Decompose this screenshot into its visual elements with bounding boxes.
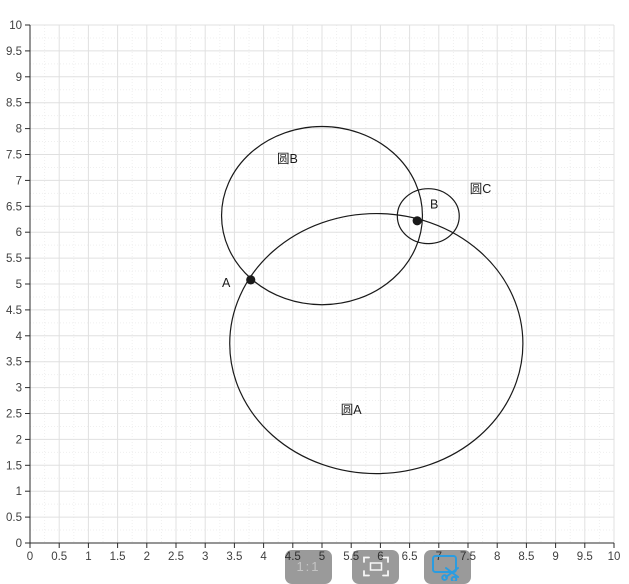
circle-B-label: 圆B <box>277 152 298 166</box>
x-tick-label: 3.5 <box>226 551 242 563</box>
point-A <box>246 275 255 284</box>
y-tick-label: 7 <box>16 175 22 187</box>
y-tick-label: 9 <box>16 72 22 84</box>
x-tick-label: 9 <box>552 551 558 563</box>
x-tick-label: 1.5 <box>110 551 126 563</box>
point-B <box>413 216 422 225</box>
x-tick-label: 6.5 <box>402 551 418 563</box>
x-tick-label: 1 <box>85 551 91 563</box>
y-tick-label: 1 <box>16 486 22 498</box>
x-tick-label: 4 <box>260 551 267 563</box>
circle-C-label: 圆C <box>470 182 492 196</box>
y-tick-label: 9.5 <box>6 46 22 58</box>
y-tick-label: 1.5 <box>6 460 22 472</box>
x-tick-label: 8 <box>494 551 500 563</box>
y-tick-label: 4.5 <box>6 305 22 317</box>
circle-A-label: 圆A <box>341 403 363 417</box>
plot-svg: 00.511.522.533.544.555.566.577.588.599.5… <box>0 0 629 577</box>
x-tick-label: 0 <box>27 551 33 563</box>
y-tick-label: 6.5 <box>6 201 22 213</box>
y-tick-label: 4 <box>16 331 23 343</box>
y-tick-label: 0 <box>16 538 22 550</box>
x-tick-label: 0.5 <box>51 551 67 563</box>
y-tick-label: 0.5 <box>6 512 22 524</box>
y-tick-label: 2 <box>16 434 22 446</box>
circle-A <box>230 214 523 474</box>
frame-capture-button[interactable] <box>352 550 399 584</box>
crop-screenshot-button[interactable] <box>424 550 471 584</box>
y-tick-label: 5 <box>16 279 22 291</box>
actual-size-button[interactable]: 1:1 <box>285 550 332 584</box>
x-tick-label: 10 <box>608 551 621 563</box>
x-tick-label: 3 <box>202 551 208 563</box>
y-tick-label: 2.5 <box>6 409 22 421</box>
figure-canvas: 00.511.522.533.544.555.566.577.588.599.5… <box>0 0 629 577</box>
point-B-label: B <box>430 198 438 212</box>
x-tick-label: 2.5 <box>168 551 184 563</box>
y-tick-label: 10 <box>9 20 22 32</box>
x-tick-label: 8.5 <box>518 551 534 563</box>
x-tick-label: 2 <box>144 551 150 563</box>
y-tick-label: 8 <box>16 124 22 136</box>
y-tick-label: 7.5 <box>6 150 22 162</box>
x-tick-label: 9.5 <box>577 551 593 563</box>
y-tick-label: 5.5 <box>6 253 22 265</box>
one-to-one-icon: 1:1 <box>296 559 320 574</box>
y-tick-label: 3 <box>16 383 22 395</box>
point-A-label: A <box>222 276 231 290</box>
y-tick-label: 8.5 <box>6 98 22 110</box>
frame-select-icon <box>362 554 390 580</box>
y-tick-label: 6 <box>16 227 22 239</box>
y-tick-label: 3.5 <box>6 357 22 369</box>
